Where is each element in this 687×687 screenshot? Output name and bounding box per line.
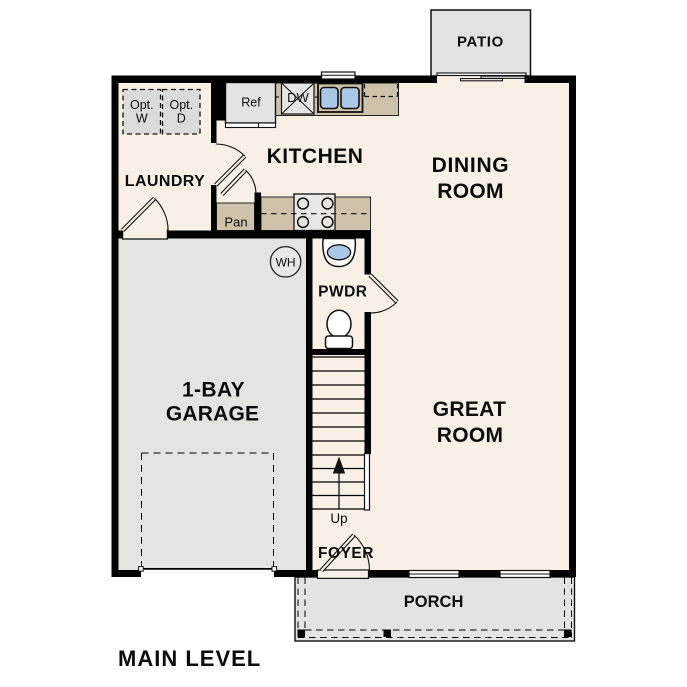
svg-text:PWDR: PWDR: [318, 284, 367, 301]
svg-text:GREAT: GREAT: [433, 398, 506, 421]
svg-text:GARAGE: GARAGE: [166, 402, 259, 425]
svg-text:ROOM: ROOM: [437, 180, 504, 203]
svg-text:Opt.: Opt.: [169, 98, 193, 112]
svg-text:W: W: [136, 112, 148, 126]
svg-text:1-BAY: 1-BAY: [182, 378, 245, 401]
svg-text:Opt.: Opt.: [130, 98, 154, 112]
svg-text:ROOM: ROOM: [437, 424, 504, 447]
svg-text:DINING: DINING: [432, 154, 510, 177]
svg-text:Ref: Ref: [241, 96, 261, 110]
svg-text:D: D: [177, 112, 186, 126]
svg-text:PORCH: PORCH: [404, 593, 464, 611]
svg-text:WH: WH: [276, 255, 296, 269]
svg-text:MAIN LEVEL: MAIN LEVEL: [118, 646, 261, 671]
svg-text:KITCHEN: KITCHEN: [267, 145, 364, 168]
svg-text:PATIO: PATIO: [457, 34, 504, 51]
svg-text:LAUNDRY: LAUNDRY: [125, 173, 205, 190]
svg-text:Up: Up: [330, 511, 347, 526]
svg-text:FOYER: FOYER: [318, 545, 374, 562]
svg-text:Pan: Pan: [224, 215, 247, 230]
svg-text:DW: DW: [287, 90, 309, 105]
